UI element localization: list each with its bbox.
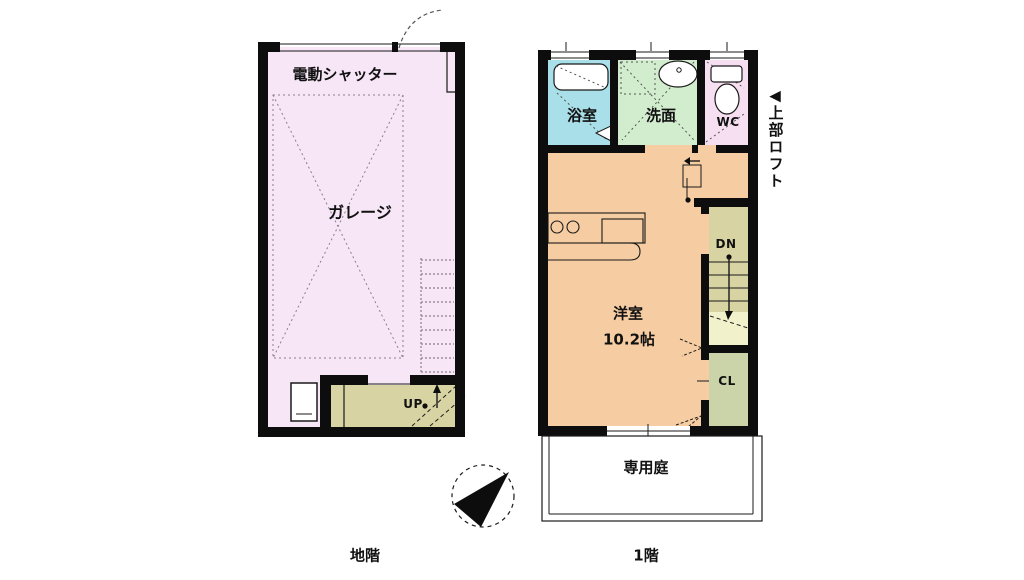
compass-icon bbox=[452, 465, 514, 527]
window bbox=[551, 42, 744, 60]
driveway-arc bbox=[399, 10, 442, 48]
sink-icon bbox=[659, 61, 697, 87]
room-size-label: 10.2帖 bbox=[603, 333, 655, 348]
garage-room bbox=[263, 47, 460, 432]
up-label: UP bbox=[403, 398, 423, 410]
garden-area bbox=[542, 436, 762, 521]
room-label: 洋室 bbox=[613, 307, 643, 322]
bath-label: 浴室 bbox=[567, 109, 597, 124]
shutter-label: 電動シャッター bbox=[292, 68, 397, 83]
stairs-door-opening bbox=[701, 214, 709, 254]
wash-wc-wall bbox=[697, 55, 705, 145]
closet-door-opening bbox=[701, 360, 709, 400]
closet-area bbox=[709, 353, 748, 426]
floorplan-canvas: 電動シャッター ガレージ UP 地階 浴室 洗面 WC 洋室 10.2帖 DN … bbox=[0, 0, 1024, 580]
loft-arrow-icon: ◀ bbox=[769, 89, 781, 104]
wash-label: 洗面 bbox=[646, 109, 676, 124]
loft-label: 上部ロフト bbox=[768, 105, 783, 190]
first-floor-label: 1階 bbox=[633, 549, 658, 564]
water-heater-icon bbox=[291, 383, 317, 421]
top-row-bottom-wall bbox=[538, 145, 758, 153]
stair-wall bbox=[320, 375, 331, 432]
dn-label: DN bbox=[715, 238, 736, 250]
basement-floor-label: 地階 bbox=[350, 549, 380, 564]
cl-label: CL bbox=[718, 375, 735, 387]
garage-label: ガレージ bbox=[328, 205, 392, 221]
floorplan-graphics bbox=[0, 0, 1024, 580]
garden-label: 専用庭 bbox=[623, 461, 668, 476]
bath-wash-wall bbox=[610, 55, 618, 145]
wc-label: WC bbox=[716, 116, 739, 128]
